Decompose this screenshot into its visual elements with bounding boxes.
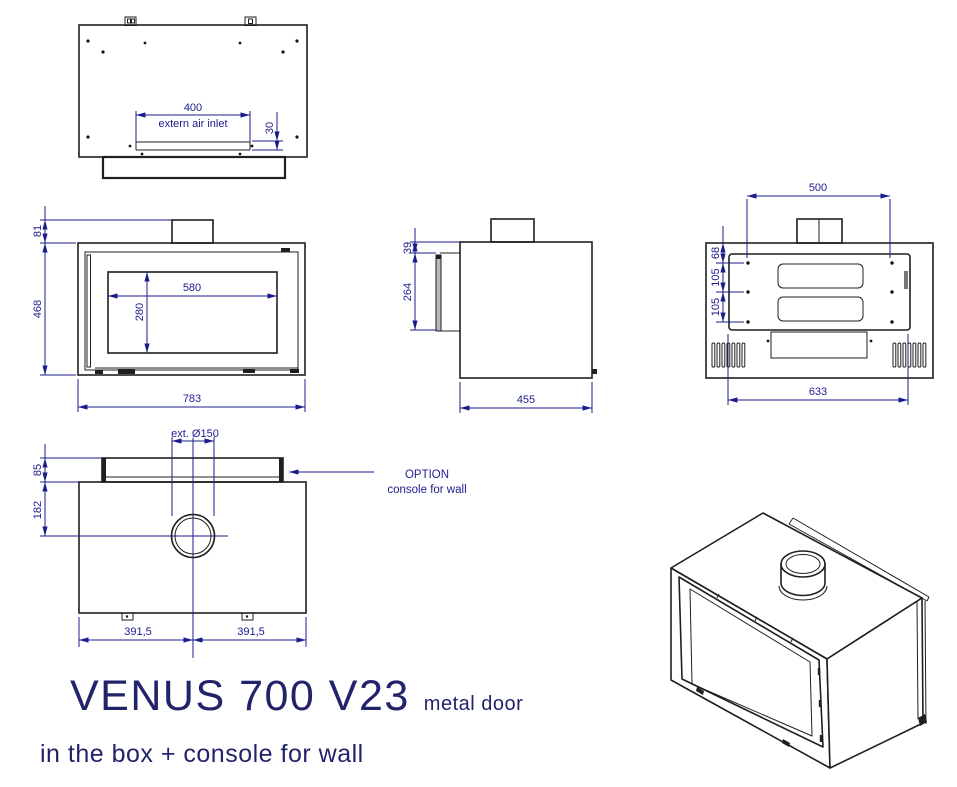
dim-flue-center-offset: 182 — [32, 482, 45, 536]
dim-front-flue-height: 81 — [32, 206, 172, 243]
dim-label-hole-top-offset: 68 — [710, 247, 722, 259]
dim-glass-height: 280 — [134, 272, 147, 353]
option-callout: OPTION console for wall — [289, 469, 467, 496]
dim-label-flue-diameter: ext. Ø150 — [171, 428, 219, 440]
dim-side-depth: 455 — [460, 382, 592, 413]
top-view-body — [79, 25, 307, 157]
model-name: VENUS 700 V23 — [70, 672, 410, 720]
drawing-subtitle: in the box + console for wall — [40, 740, 364, 769]
drawing-sheet: 400 extern air inlet 30 81 — [0, 0, 957, 787]
dim-front-width: 783 — [78, 379, 305, 412]
dim-flue-diameter: ext. Ø150 — [171, 428, 219, 516]
dim-label-front-height: 468 — [32, 300, 44, 318]
dim-front-height: 468 — [32, 243, 76, 375]
dim-label-half-width-left: 391,5 — [124, 626, 152, 638]
rear-holes — [746, 261, 893, 323]
model-variant: metal door — [424, 693, 524, 715]
dim-label-depth: 455 — [517, 394, 535, 406]
dim-label-inlet-offset: 30 — [264, 122, 276, 134]
dim-label-glass-height: 280 — [134, 303, 146, 321]
dim-rear-bottom-span: 633 — [728, 334, 908, 405]
dim-label-flue-center-offset: 182 — [32, 501, 44, 519]
dim-label-console-depth: 85 — [32, 464, 44, 476]
dim-label-bracket-span: 500 — [809, 182, 827, 194]
side-flue-stub — [491, 219, 534, 242]
dim-label-hole-spacing-upper: 105 — [710, 268, 722, 286]
dim-console-depth: 85 — [32, 444, 102, 482]
technical-drawing: 400 extern air inlet 30 81 — [0, 0, 957, 787]
side-door-edge — [436, 255, 441, 331]
top-view-holes — [86, 39, 298, 155]
isometric-view — [671, 513, 929, 768]
door-latch — [281, 248, 290, 252]
option-label-line1: OPTION — [405, 469, 449, 481]
door-hinge-strip — [87, 255, 91, 367]
front-view: 81 468 580 280 783 — [32, 206, 305, 412]
dim-air-inlet: 400 extern air inlet — [136, 102, 250, 142]
rear-slot-upper — [778, 264, 863, 288]
dim-label-bottom-span: 633 — [809, 386, 827, 398]
front-flue-stub — [172, 220, 213, 243]
dim-side-top-offset: 39 — [402, 228, 460, 254]
dim-label-door-height: 264 — [402, 283, 414, 301]
side-handle — [592, 369, 597, 374]
dim-label-glass-width: 580 — [183, 282, 201, 294]
bottom-view: ext. Ø150 85 182 391,5 391,5 OPTION cons… — [32, 428, 467, 658]
rear-slot-lower — [778, 297, 863, 321]
dim-glass-width: 580 — [108, 282, 277, 296]
dim-label-half-width-right: 391,5 — [237, 626, 265, 638]
side-view-body — [460, 242, 592, 378]
rear-panel — [729, 254, 910, 330]
dim-label-flue-stub-height: 81 — [32, 225, 44, 237]
rear-recess — [771, 332, 867, 358]
air-inlet-label: extern air inlet — [158, 118, 227, 130]
rear-view: 500 68 105 105 633 — [706, 182, 933, 405]
front-view-body — [78, 243, 305, 375]
dim-rear-hole-offsets: 68 105 105 — [710, 226, 744, 322]
dim-inlet-offset: 30 — [252, 112, 283, 150]
option-label-line2: console for wall — [387, 484, 466, 496]
top-view-flange — [103, 157, 285, 178]
title-block: VENUS 700 V23metal door — [70, 672, 523, 721]
dim-label-air-inlet-width: 400 — [184, 102, 202, 114]
side-view: 39 264 455 — [402, 219, 597, 413]
dim-side-door-height: 264 — [402, 253, 436, 330]
top-view: 400 extern air inlet 30 — [79, 17, 307, 178]
dim-label-front-width: 783 — [183, 393, 201, 405]
dim-label-hole-spacing-lower: 105 — [710, 298, 722, 316]
dim-label-door-top-offset: 39 — [402, 242, 414, 254]
rear-grille-right — [893, 343, 926, 367]
door-handle — [118, 369, 135, 374]
